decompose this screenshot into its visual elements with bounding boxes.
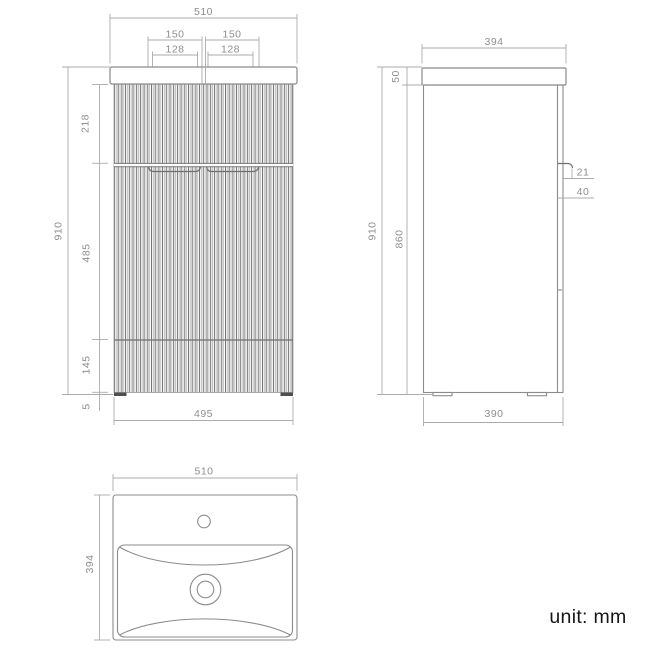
side-handle-projection-label: 21 <box>577 167 590 179</box>
front-left-foot <box>114 393 127 397</box>
side-worktop-thickness-label: 50 <box>390 70 402 83</box>
side-overall-depth-label: 394 <box>484 36 503 48</box>
front-drawer-gap <box>114 164 293 166</box>
front-overall-width-label: 510 <box>194 6 213 18</box>
basin-depth-label: 394 <box>84 554 96 573</box>
unit-note: unit: mm <box>549 606 626 628</box>
front-fluted-body <box>114 84 293 393</box>
basin-width-label: 510 <box>194 466 213 478</box>
front-handle-cutout-left-label: 128 <box>165 44 184 56</box>
front-bottom-drawer-height-label: 485 <box>81 243 93 262</box>
side-back-foot <box>528 393 547 396</box>
front-view: 510 150 150 128 128 910 <box>53 6 298 425</box>
front-foot-height-label: 5 <box>81 403 93 409</box>
basin-outer-rim <box>113 495 297 640</box>
side-cabinet-height-label: 860 <box>394 229 406 248</box>
front-top-drawer-height-label: 218 <box>80 114 92 133</box>
basin-top-view: 510 394 <box>84 466 297 641</box>
side-front-foot <box>433 393 452 396</box>
side-countertop <box>422 68 566 85</box>
front-handle-pitch-right-label: 150 <box>222 29 241 41</box>
side-handle-drop-label: 40 <box>577 186 590 198</box>
front-overall-height-label: 910 <box>53 221 65 240</box>
side-cabinet-body <box>424 85 564 393</box>
front-body-width-label: 495 <box>194 408 213 420</box>
front-handle-pitch-left-label: 150 <box>165 29 184 41</box>
vanity-technical-drawing: 510 150 150 128 128 910 <box>0 0 650 650</box>
front-right-foot <box>281 393 294 397</box>
side-view: 394 910 50 860 21 40 390 <box>367 36 595 426</box>
drawing-canvas: 510 150 150 128 128 910 <box>0 0 650 650</box>
front-countertop <box>110 67 297 84</box>
side-body-depth-label: 390 <box>484 408 503 420</box>
front-handle-cutout-right-label: 128 <box>221 44 240 56</box>
side-overall-height-label: 910 <box>367 221 379 240</box>
front-base-panel-height-label: 145 <box>81 355 93 374</box>
